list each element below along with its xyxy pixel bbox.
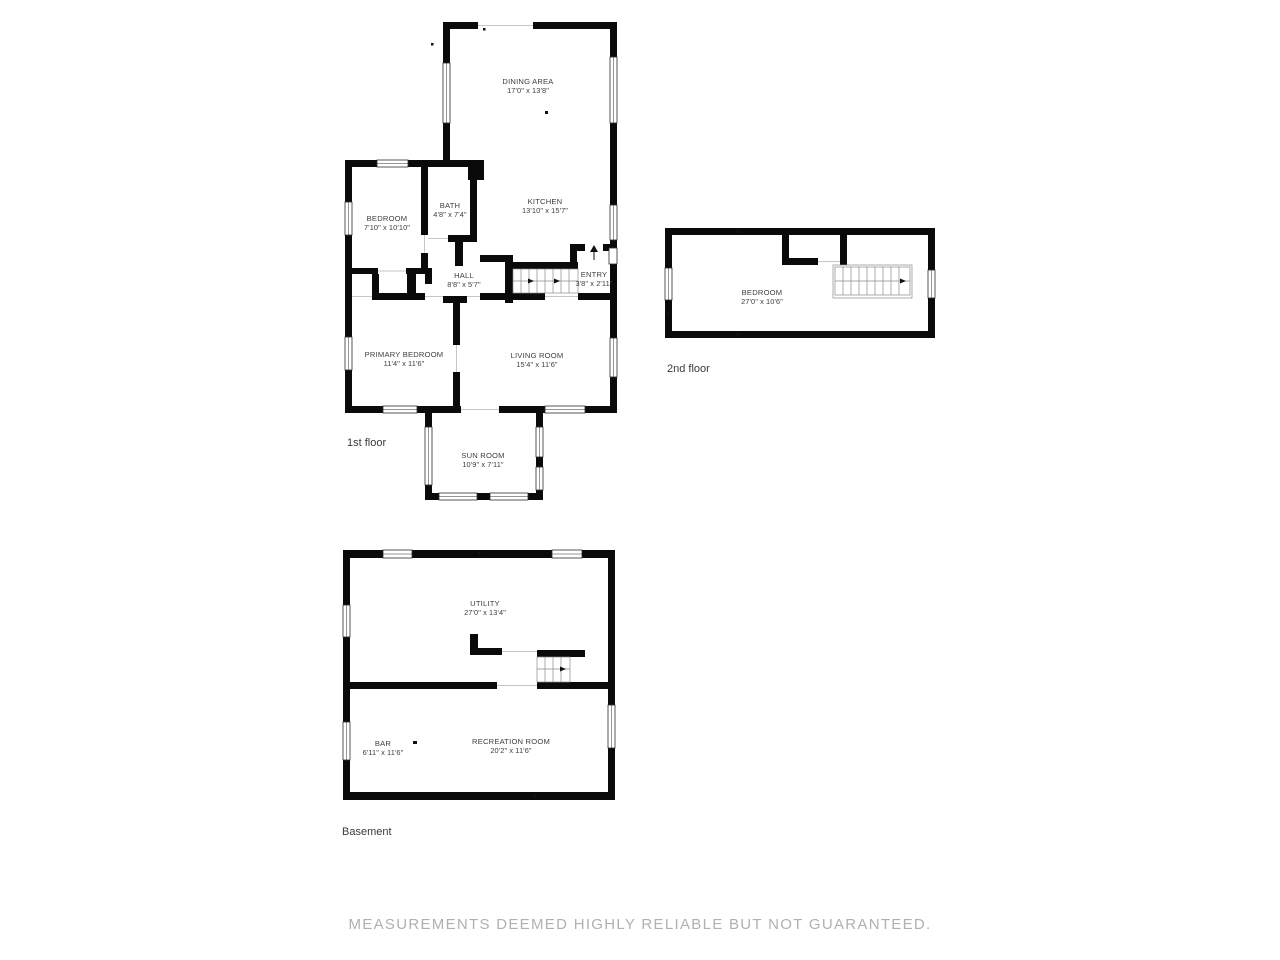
- room-label-dining-dims: 17'0" x 13'8": [507, 86, 549, 95]
- room-label-hall-name: HALL: [454, 271, 474, 280]
- room-label-bedroom-name: BEDROOM: [367, 214, 408, 223]
- basement-plan: UTILITY 27'0" x 13'4" BAR 6'11" x 11'6" …: [338, 545, 623, 810]
- room-label-living-dims: 15'4" x 11'6": [516, 360, 558, 369]
- room-label-bedroom2-name: BEDROOM: [742, 288, 783, 297]
- room-label-utility-dims: 27'0" x 13'4": [464, 608, 506, 617]
- room-label-bar-dims: 6'11" x 11'6": [363, 748, 404, 757]
- room-label-hall-dims: 8'8" x 5'7": [447, 280, 481, 289]
- room-label-bedroom2-dims: 27'0" x 10'6": [741, 297, 783, 306]
- floorplan-page: DINING AREA 17'0" x 13'8" KITCHEN 13'10"…: [0, 0, 1280, 960]
- basement-caption: Basement: [342, 826, 392, 838]
- second-floor-tick-marks: [667, 230, 740, 336]
- basement-stairs: [537, 657, 570, 682]
- first-floor-door-arrow: [590, 245, 598, 260]
- room-label-primary-name: PRIMARY BEDROOM: [365, 350, 444, 359]
- room-label-bath-name: BATH: [440, 201, 461, 210]
- room-label-living-name: LIVING ROOM: [511, 351, 564, 360]
- room-label-kitchen-dims: 13'10" x 15'7": [522, 206, 568, 215]
- second-floor-room-labels: BEDROOM 27'0" x 10'6": [741, 288, 783, 306]
- basement-tick-marks: [413, 552, 537, 797]
- room-label-recreation-name: RECREATION ROOM: [472, 737, 550, 746]
- second-floor-caption: 2nd floor: [667, 363, 710, 375]
- first-floor-caption: 1st floor: [347, 437, 386, 449]
- first-floor-walls: [345, 22, 617, 500]
- basement-room-labels: UTILITY 27'0" x 13'4" BAR 6'11" x 11'6" …: [363, 599, 550, 757]
- room-label-utility-name: UTILITY: [470, 599, 500, 608]
- room-label-entry-dims: 3'8" x 2'11": [575, 279, 612, 288]
- disclaimer-text: MEASUREMENTS DEEMED HIGHLY RELIABLE BUT …: [0, 916, 1280, 933]
- basement-walls: [343, 550, 615, 800]
- room-label-recreation-dims: 20'2" x 11'6": [490, 746, 532, 755]
- second-floor-plan: BEDROOM 27'0" x 10'6": [660, 223, 945, 348]
- first-floor-plan: DINING AREA 17'0" x 13'8" KITCHEN 13'10"…: [340, 15, 625, 510]
- room-label-sunroom-dims: 10'9" x 7'11": [462, 460, 504, 469]
- room-label-kitchen-name: KITCHEN: [528, 197, 563, 206]
- room-label-bath-dims: 4'8" x 7'4": [433, 210, 467, 219]
- room-label-primary-dims: 11'4" x 11'6": [384, 359, 425, 368]
- second-floor-stairs: [833, 265, 912, 298]
- second-floor-walls: [665, 228, 935, 338]
- first-floor-stairs: [513, 269, 578, 293]
- room-label-bedroom-dims: 7'10" x 10'10": [364, 223, 410, 232]
- room-label-bar-name: BAR: [375, 739, 392, 748]
- room-label-dining-name: DINING AREA: [502, 77, 554, 86]
- room-label-sunroom-name: SUN ROOM: [461, 451, 504, 460]
- room-label-entry-name: ENTRY: [581, 270, 608, 279]
